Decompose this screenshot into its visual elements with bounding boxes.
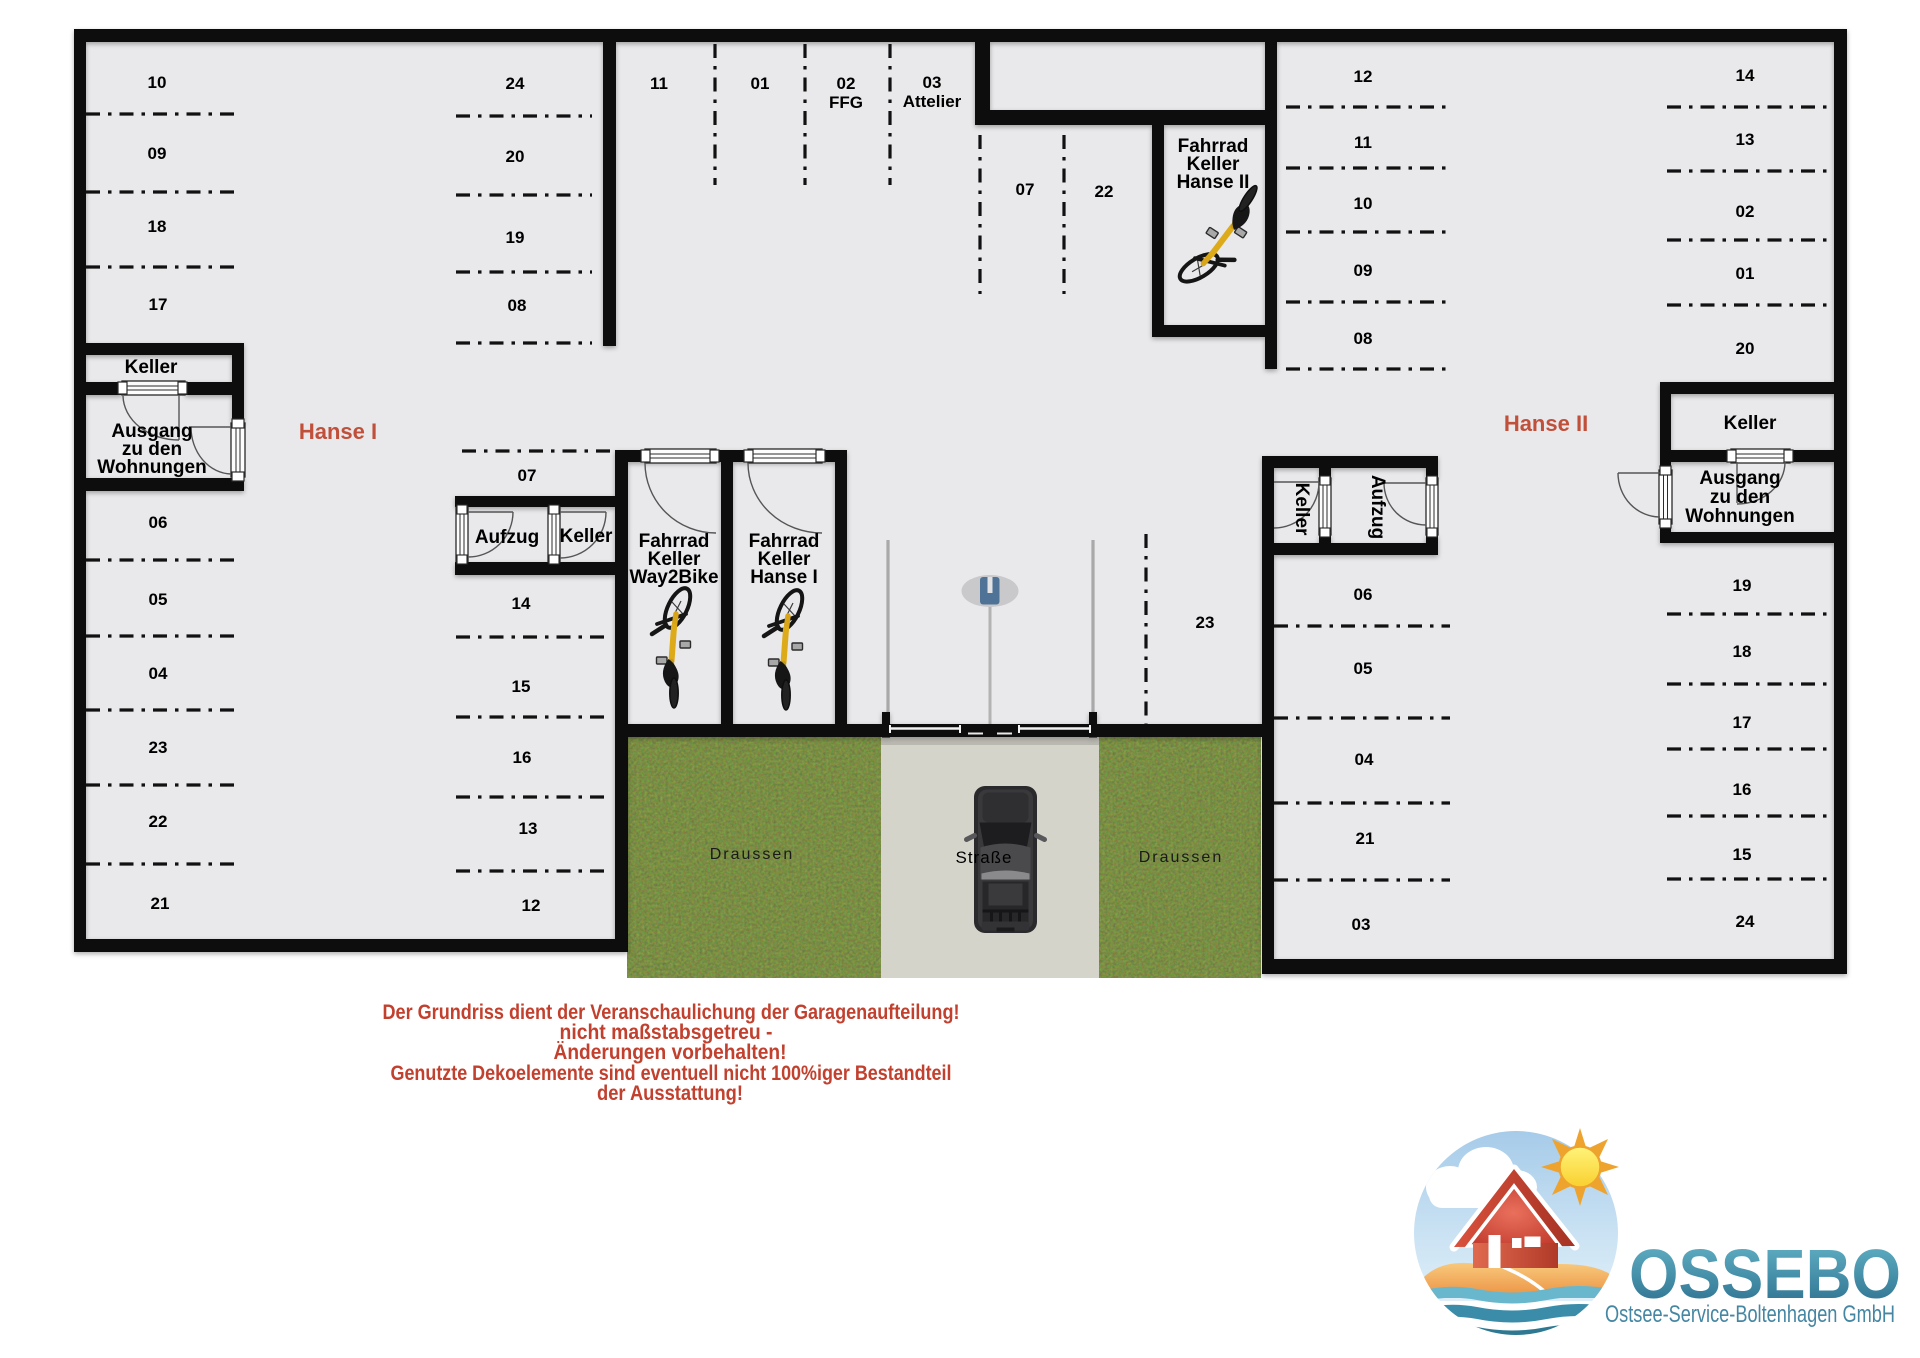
svg-text:Keller: Keller bbox=[560, 526, 613, 547]
svg-text:zu den: zu den bbox=[1710, 487, 1770, 508]
svg-text:21: 21 bbox=[1356, 829, 1375, 848]
svg-text:24: 24 bbox=[1736, 912, 1755, 931]
svg-text:08: 08 bbox=[508, 296, 527, 315]
svg-text:Hanse II: Hanse II bbox=[1504, 411, 1588, 436]
svg-text:Way2Bike: Way2Bike bbox=[629, 567, 718, 588]
svg-text:Keller: Keller bbox=[125, 357, 178, 378]
svg-text:09: 09 bbox=[1354, 261, 1373, 280]
svg-text:06: 06 bbox=[149, 513, 168, 532]
svg-text:10: 10 bbox=[148, 73, 167, 92]
svg-text:18: 18 bbox=[148, 217, 167, 236]
svg-text:03: 03 bbox=[923, 73, 942, 92]
svg-text:FFG: FFG bbox=[829, 93, 863, 112]
svg-text:13: 13 bbox=[519, 819, 538, 838]
svg-text:Draussen: Draussen bbox=[710, 846, 794, 863]
svg-text:22: 22 bbox=[1095, 182, 1114, 201]
svg-text:23: 23 bbox=[1196, 613, 1215, 632]
svg-text:Hanse II: Hanse II bbox=[1177, 172, 1250, 193]
svg-text:20: 20 bbox=[506, 147, 525, 166]
svg-text:19: 19 bbox=[506, 228, 525, 247]
svg-text:16: 16 bbox=[1733, 780, 1752, 799]
svg-text:16: 16 bbox=[513, 748, 532, 767]
svg-text:12: 12 bbox=[1354, 67, 1373, 86]
svg-text:11: 11 bbox=[650, 74, 668, 93]
svg-text:08: 08 bbox=[1354, 329, 1373, 348]
svg-text:01: 01 bbox=[751, 74, 770, 93]
svg-text:07: 07 bbox=[518, 466, 537, 485]
svg-text:05: 05 bbox=[149, 590, 168, 609]
svg-text:10: 10 bbox=[1354, 194, 1373, 213]
svg-text:Ostsee-Service-Boltenhagen Gmb: Ostsee-Service-Boltenhagen GmbH bbox=[1605, 1301, 1895, 1328]
svg-text:22: 22 bbox=[149, 812, 168, 831]
svg-text:12: 12 bbox=[522, 896, 541, 915]
svg-text:24: 24 bbox=[506, 74, 525, 93]
svg-text:Aufzug: Aufzug bbox=[1367, 475, 1388, 539]
svg-text:11: 11 bbox=[1354, 133, 1372, 152]
svg-text:Attelier: Attelier bbox=[903, 92, 962, 111]
svg-text:Keller: Keller bbox=[1724, 413, 1777, 434]
svg-text:Wohnungen: Wohnungen bbox=[97, 457, 206, 478]
svg-text:04: 04 bbox=[1355, 750, 1374, 769]
svg-text:14: 14 bbox=[512, 594, 531, 613]
svg-text:09: 09 bbox=[148, 144, 167, 163]
svg-text:18: 18 bbox=[1733, 642, 1752, 661]
svg-text:14: 14 bbox=[1736, 66, 1755, 85]
svg-text:Hanse I: Hanse I bbox=[299, 419, 377, 444]
svg-text:17: 17 bbox=[1733, 713, 1752, 732]
svg-text:der Ausstattung!: der Ausstattung! bbox=[597, 1082, 743, 1105]
svg-text:01: 01 bbox=[1736, 264, 1755, 283]
svg-text:04: 04 bbox=[149, 664, 168, 683]
svg-text:15: 15 bbox=[512, 677, 531, 696]
svg-text:Keller: Keller bbox=[1291, 483, 1312, 536]
svg-text:15: 15 bbox=[1733, 845, 1752, 864]
svg-text:23: 23 bbox=[149, 738, 168, 757]
svg-text:19: 19 bbox=[1733, 576, 1752, 595]
svg-text:03: 03 bbox=[1352, 915, 1371, 934]
svg-text:21: 21 bbox=[151, 894, 170, 913]
svg-text:Änderungen vorbehalten!: Änderungen vorbehalten! bbox=[554, 1041, 787, 1064]
svg-text:05: 05 bbox=[1354, 659, 1373, 678]
svg-text:Aufzug: Aufzug bbox=[475, 527, 539, 548]
svg-text:Wohnungen: Wohnungen bbox=[1685, 506, 1794, 527]
svg-text:06: 06 bbox=[1354, 585, 1373, 604]
svg-text:17: 17 bbox=[149, 295, 168, 314]
svg-text:13: 13 bbox=[1736, 130, 1755, 149]
svg-text:02: 02 bbox=[1736, 202, 1755, 221]
svg-text:02: 02 bbox=[837, 74, 856, 93]
svg-text:Draussen: Draussen bbox=[1139, 849, 1223, 866]
svg-text:20: 20 bbox=[1736, 339, 1755, 358]
svg-text:07: 07 bbox=[1016, 180, 1035, 199]
svg-text:Hanse I: Hanse I bbox=[750, 567, 818, 588]
svg-text:Straße: Straße bbox=[955, 848, 1012, 867]
svg-text:Ausgang: Ausgang bbox=[1699, 468, 1780, 489]
